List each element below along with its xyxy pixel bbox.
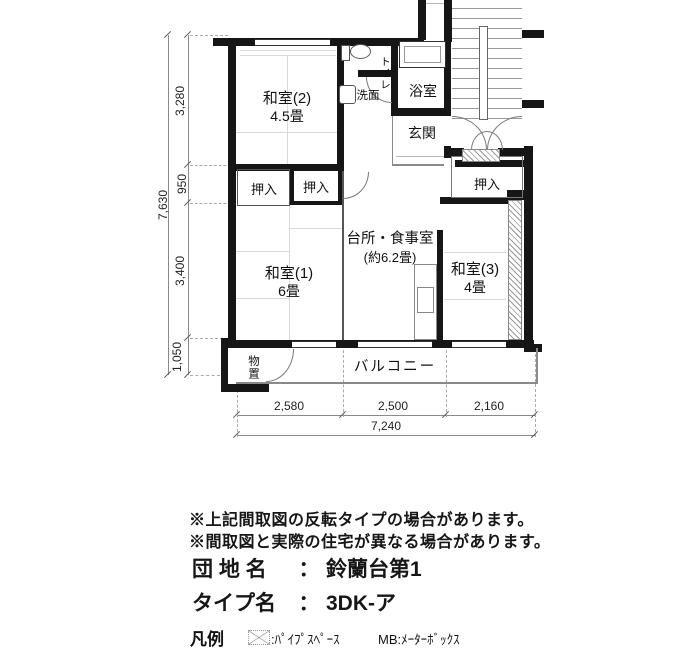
- room-label-genkan: 玄関: [402, 123, 442, 143]
- partition: [392, 116, 393, 166]
- note-line-1: ※上記間取図の反転タイプの場合があります。: [189, 506, 534, 530]
- dim-bottom-total: 7,240: [364, 419, 408, 433]
- legend-pipe-space: :ﾊﾟｲﾌﾟｽﾍﾟｰｽ: [271, 629, 340, 648]
- dim-bottom-seg2: 2,500: [371, 399, 415, 413]
- estate-name-separator: ：: [292, 553, 326, 583]
- dim-line: [237, 435, 535, 436]
- meter-box-hatch: [462, 149, 500, 162]
- room-label-monooki: 物置: [245, 350, 261, 384]
- dim-bottom-seg3: 2,160: [467, 399, 511, 413]
- legend-meter-box: MB:ﾒｰﾀｰﾎﾞｯｸｽ: [378, 629, 460, 648]
- room-label-dk: 台所・食事室: [340, 227, 440, 248]
- pipe-space-icon: [248, 630, 270, 645]
- balcony-edge: [236, 382, 538, 384]
- room-label-washitsu3: 和室(3): [443, 258, 507, 279]
- wall: [221, 384, 269, 392]
- estate-name-value: 鈴蘭台第1: [326, 553, 422, 583]
- dim-line: [188, 35, 189, 375]
- room-size-washitsu2: 4.5畳: [237, 106, 337, 126]
- dim-left-seg1: 3,280: [173, 79, 187, 123]
- estate-name-row: 団 地 名 ： 鈴蘭台第1: [192, 553, 422, 583]
- room-label-senmen: 洗面: [354, 87, 382, 103]
- kitchen-sink-icon: [417, 287, 434, 313]
- room-label-balcony: バルコニー: [350, 355, 440, 376]
- type-name-row: タイプ名 ： 3DK-ア: [192, 587, 396, 617]
- estate-name-label: 団 地 名: [192, 553, 292, 583]
- window: [358, 341, 432, 348]
- extension-line: [190, 35, 228, 36]
- room-label-bath: 浴室: [403, 81, 443, 101]
- bathtub-inner: [404, 46, 441, 63]
- dim-left-total: 7,630: [156, 183, 170, 227]
- type-name-value: 3DK-ア: [326, 587, 396, 617]
- stair-handrail: [479, 26, 488, 120]
- balcony-edge: [536, 348, 538, 383]
- note-line-2: ※間取図と実際の住宅が異なる場合があります。: [189, 528, 550, 552]
- closet-label: 押入: [238, 179, 290, 198]
- legend-title: 凡例: [190, 625, 224, 650]
- closet-label: 押入: [452, 174, 522, 193]
- wall: [444, 0, 452, 42]
- wall: [524, 146, 533, 352]
- window: [452, 341, 506, 348]
- extension-line: [446, 350, 447, 417]
- storage-door-arc: [266, 349, 294, 382]
- window: [255, 39, 330, 46]
- toilet-bowl-icon: [350, 44, 371, 59]
- closet-label: 押入: [291, 177, 341, 196]
- dim-left-seg2: 950: [175, 169, 189, 199]
- extension-line: [190, 375, 220, 376]
- pipe-space-hatch: [508, 200, 522, 340]
- wall: [418, 0, 426, 40]
- dim-bottom-seg1: 2,580: [267, 399, 311, 413]
- floorplan-page: 7,630 3,280 950 3,400 1,050 2,580 2,500 …: [0, 0, 700, 650]
- extension-line: [343, 350, 344, 417]
- room-label-washitsu2: 和室(2): [237, 87, 337, 108]
- window: [292, 341, 336, 348]
- wall: [522, 100, 544, 108]
- room-size-washitsu3: 4畳: [443, 277, 507, 297]
- room-size-washitsu1: 6畳: [238, 281, 340, 301]
- wall: [391, 108, 451, 116]
- room-size-dk: (約6.2畳): [340, 247, 440, 266]
- dim-left-seg3: 3,400: [173, 249, 187, 293]
- dim-left-seg4: 1,050: [170, 335, 184, 379]
- wall: [228, 38, 236, 348]
- wall: [522, 30, 544, 38]
- toilet-tank-icon: [341, 45, 350, 61]
- dk-door-arc: [343, 172, 369, 199]
- wall: [440, 197, 512, 204]
- stairwell-edge: [426, 3, 444, 4]
- genkan-step-line: [396, 156, 444, 157]
- dim-line: [237, 415, 535, 416]
- type-name-label: タイプ名: [192, 587, 292, 617]
- genkan-step-line: [392, 164, 444, 166]
- type-name-separator: ：: [292, 587, 326, 617]
- room-label-washitsu1: 和室(1): [238, 262, 340, 283]
